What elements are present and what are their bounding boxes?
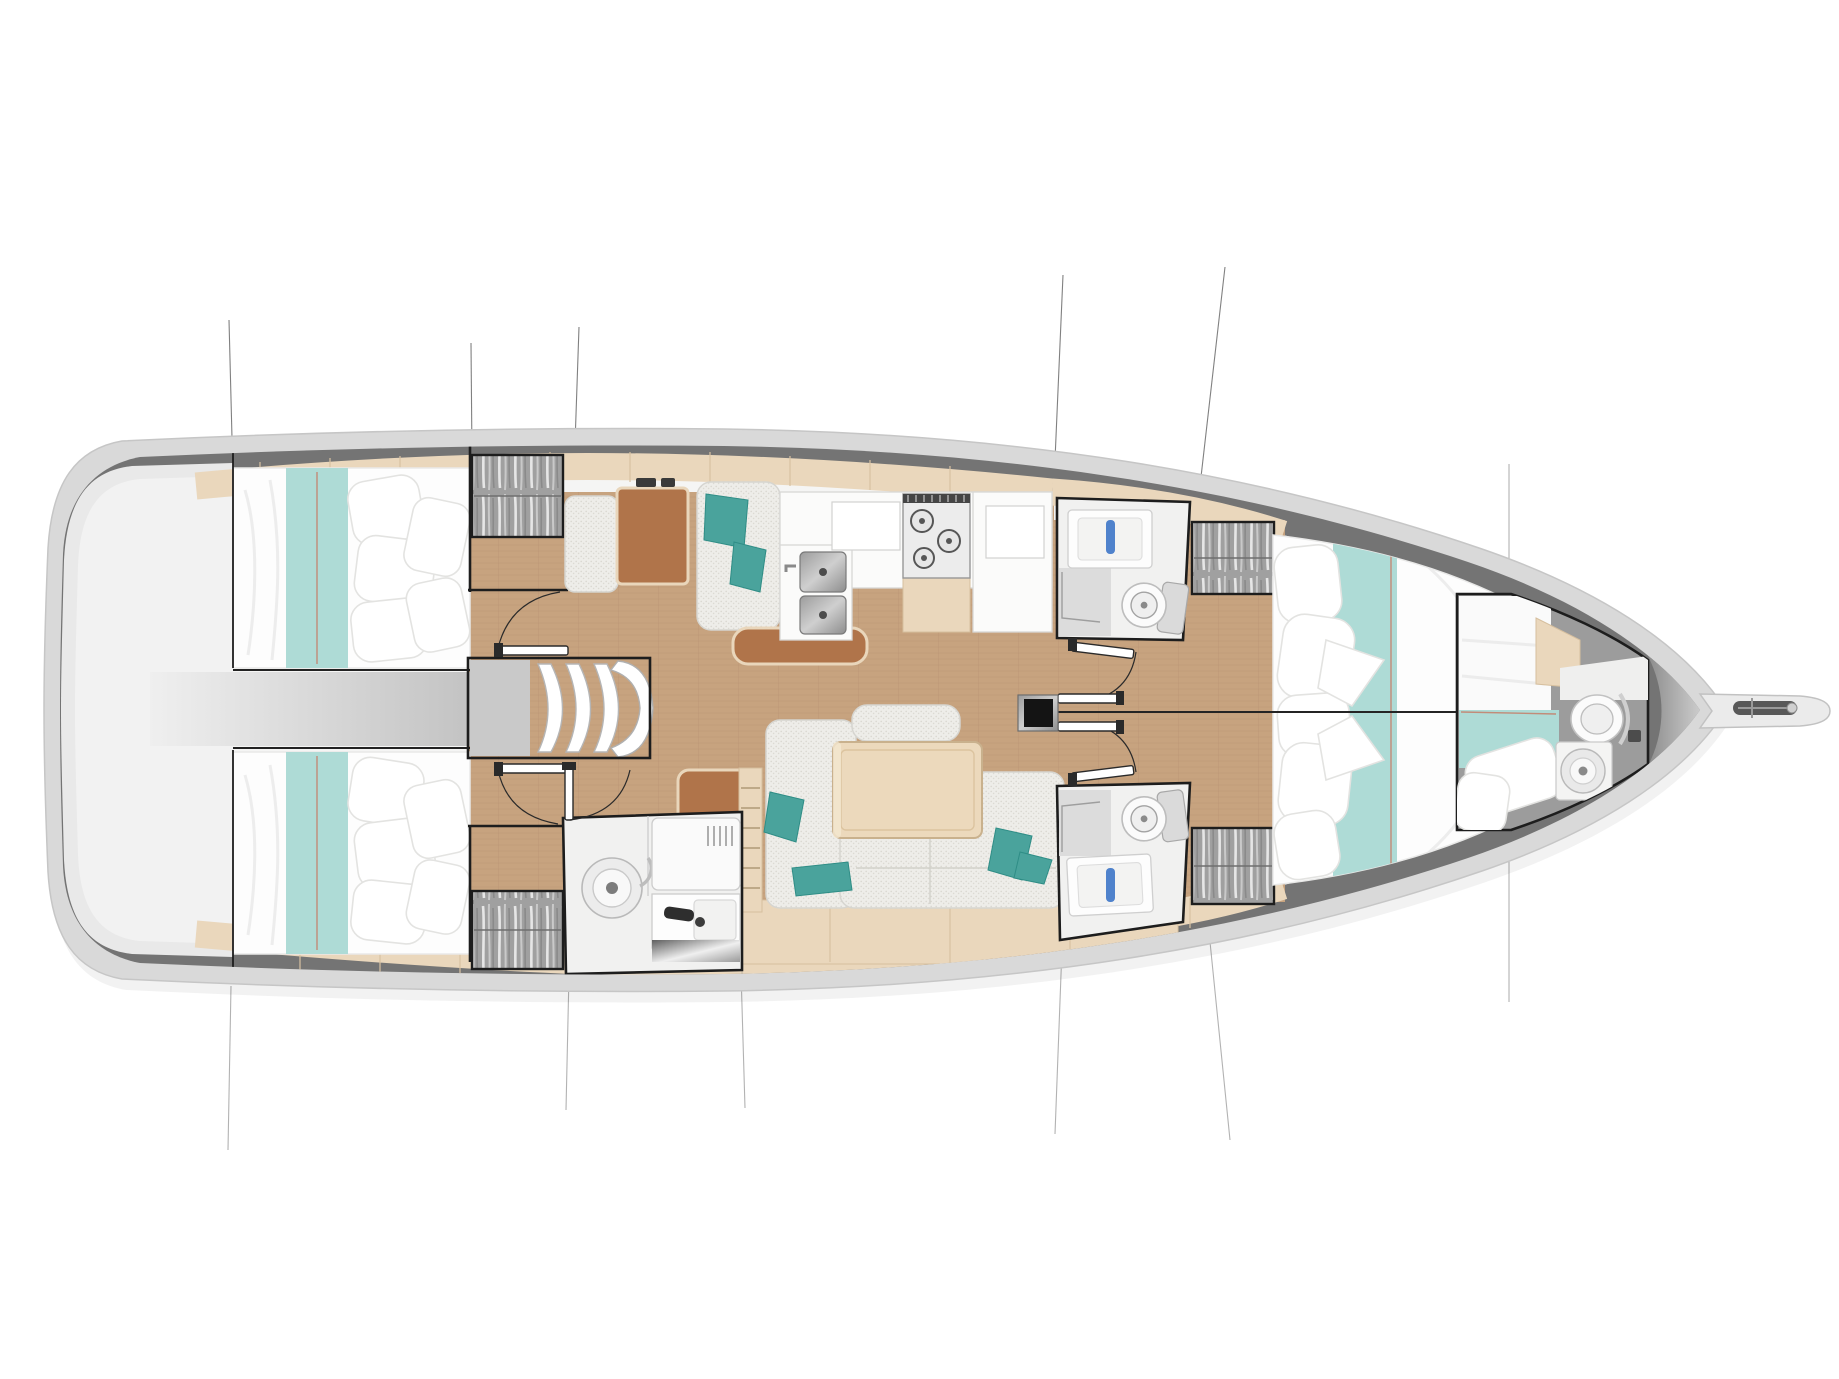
companionway xyxy=(468,658,653,758)
chart-table xyxy=(617,488,688,584)
pillows xyxy=(345,755,473,946)
washbasin xyxy=(1067,854,1154,916)
floor-plan-canvas xyxy=(0,0,1839,1379)
settee-backrest xyxy=(852,705,960,741)
teal-pillow xyxy=(704,494,748,548)
shower-tray xyxy=(652,818,740,890)
galley xyxy=(780,492,1052,640)
settee-port xyxy=(697,482,780,630)
callout-line xyxy=(229,320,232,438)
companionway-landing xyxy=(470,660,530,756)
dining-table xyxy=(833,742,982,838)
mast xyxy=(1018,695,1058,731)
basin-faucet xyxy=(1106,520,1115,554)
teal-pillow xyxy=(730,542,766,592)
galley-base xyxy=(903,578,970,632)
counter-lid xyxy=(832,502,900,550)
bowsprit xyxy=(1700,694,1830,728)
aft-head xyxy=(563,812,742,974)
nav-instruments xyxy=(636,478,656,487)
engine-compartment xyxy=(150,670,470,748)
counter-lid xyxy=(986,506,1044,558)
yacht-floor-plan xyxy=(0,0,1839,1379)
washbasin xyxy=(652,894,740,962)
basin-faucet xyxy=(1106,868,1115,902)
stove xyxy=(903,494,970,578)
washbasin xyxy=(1068,510,1152,568)
callout-line xyxy=(228,986,231,1150)
nav-seat xyxy=(565,496,618,592)
nav-instruments xyxy=(661,478,675,487)
chrome-strip xyxy=(652,940,740,962)
